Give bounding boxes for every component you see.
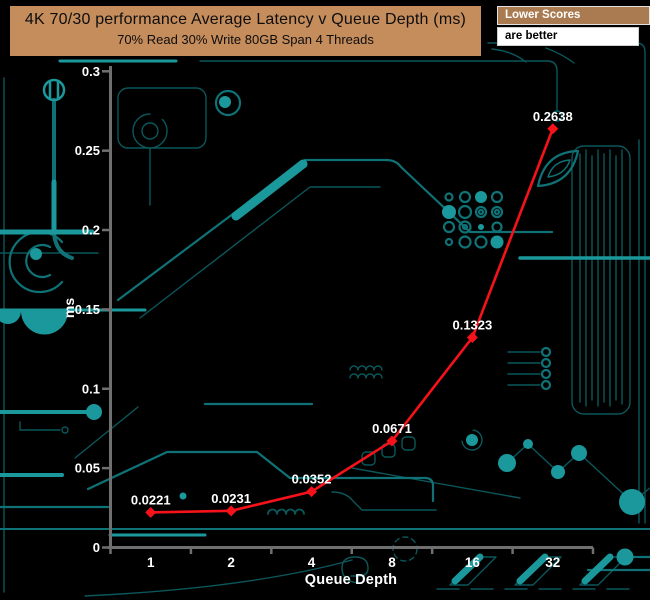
x-tick-label: 2 xyxy=(227,555,235,570)
data-point-marker xyxy=(145,507,156,518)
data-point-label: 0.0352 xyxy=(292,472,332,487)
latency-line-chart: 00.050.10.150.20.250.3124816320.02210.02… xyxy=(0,0,650,600)
data-point-label: 0.0221 xyxy=(131,492,171,507)
y-tick-label: 0.2 xyxy=(82,223,100,238)
x-axis-title: Queue Depth xyxy=(305,572,397,588)
chart-screenshot: 00.050.10.150.20.250.3124816320.02210.02… xyxy=(0,0,650,600)
chart-title: 4K 70/30 performance Average Latency v Q… xyxy=(10,11,481,29)
y-tick-label: 0.1 xyxy=(82,381,100,396)
data-point-marker xyxy=(547,123,558,134)
data-point-label: 0.0671 xyxy=(372,421,412,436)
y-tick-label: 0.05 xyxy=(75,461,100,476)
series-line xyxy=(151,129,553,513)
chart-title-box: 4K 70/30 performance Average Latency v Q… xyxy=(10,6,481,56)
x-tick-label: 8 xyxy=(388,555,396,570)
y-tick-label: 0.15 xyxy=(75,302,100,317)
data-point-label: 0.1323 xyxy=(452,317,492,332)
data-point-label: 0.2638 xyxy=(533,109,573,124)
y-tick-label: 0.25 xyxy=(75,143,100,158)
legend-note: are better xyxy=(497,27,639,46)
y-tick-label: 0 xyxy=(93,540,100,555)
y-tick-label: 0.3 xyxy=(82,64,100,79)
x-tick-label: 1 xyxy=(147,555,155,570)
data-point-marker xyxy=(226,505,237,516)
y-axis-title: ms xyxy=(61,298,77,318)
legend-header: Lower Scores xyxy=(497,6,650,25)
chart-subtitle: 70% Read 30% Write 80GB Span 4 Threads xyxy=(10,32,481,47)
data-point-label: 0.0231 xyxy=(211,491,251,506)
x-tick-label: 16 xyxy=(465,555,481,570)
x-tick-label: 32 xyxy=(545,555,560,570)
x-tick-label: 4 xyxy=(308,555,316,570)
